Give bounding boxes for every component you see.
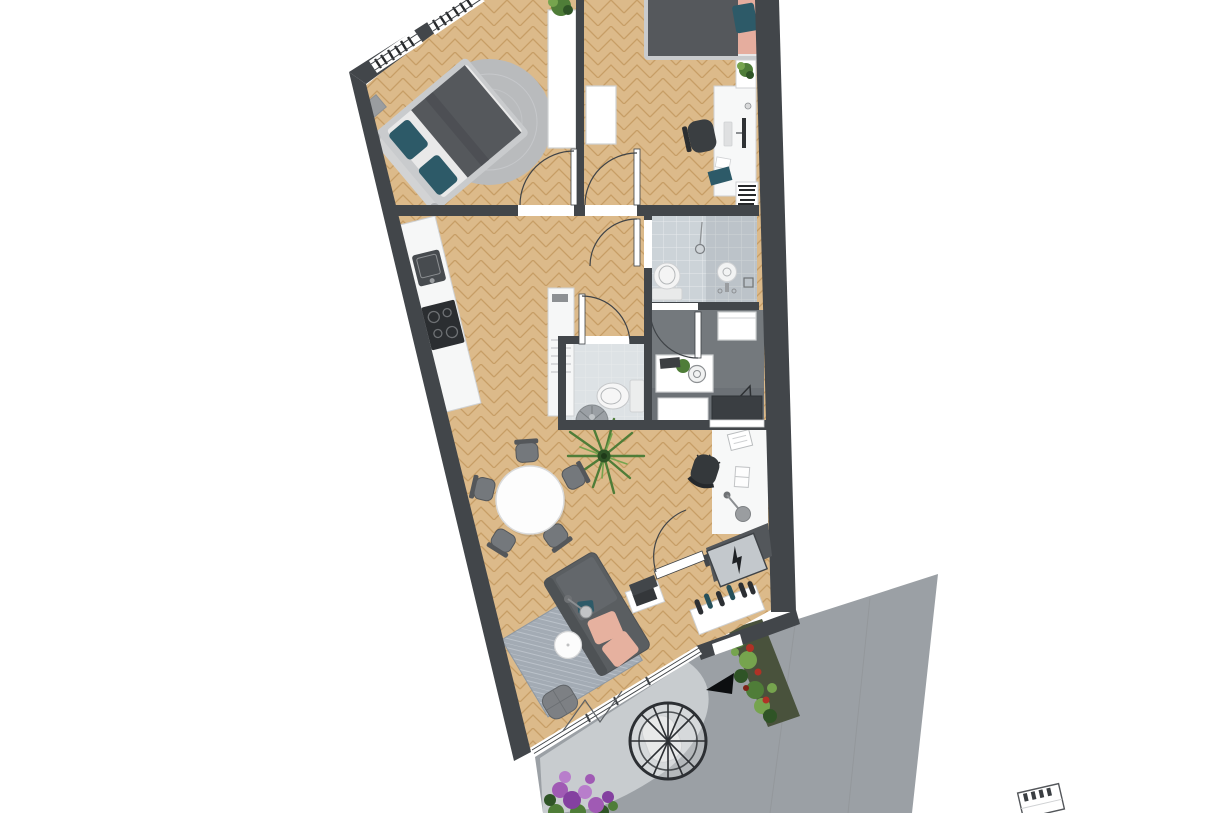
flower-foliage	[544, 794, 556, 806]
planter-flower-red	[763, 697, 770, 704]
wall-wc-left	[558, 336, 566, 428]
wall-corridor-utility	[644, 310, 652, 420]
passthrough-sill	[710, 420, 764, 427]
dining-table	[496, 466, 564, 534]
bed-blanket	[648, 0, 738, 56]
flower-purple	[585, 774, 595, 784]
utility-sink	[689, 366, 706, 383]
monitor	[742, 118, 746, 148]
toilet	[652, 263, 682, 300]
floorplan-page	[0, 0, 1220, 813]
wardrobe	[548, 10, 576, 148]
neighbor-stairs-fragment	[1018, 784, 1065, 813]
utility-counter	[656, 355, 713, 392]
planter-foliage	[731, 648, 739, 656]
flower-purple	[578, 785, 592, 799]
island-appliance	[552, 294, 568, 302]
washing-machine	[718, 312, 756, 340]
coffee-table-center	[567, 644, 570, 647]
hanging-egg-chair	[630, 703, 706, 779]
flower-purple	[559, 771, 571, 783]
floorplan-svg	[0, 0, 1220, 813]
planter-foliage	[739, 651, 757, 669]
planter-flower-red	[743, 685, 749, 691]
doorway-bathroom	[644, 220, 652, 268]
wardrobe-2	[586, 86, 616, 144]
laptop	[734, 467, 749, 488]
planter-foliage	[767, 683, 777, 693]
dining-chair	[514, 438, 540, 463]
doorway-utility	[652, 303, 698, 310]
book-shelf	[736, 182, 758, 206]
planter-flower-red	[746, 644, 754, 652]
keyboard	[724, 122, 732, 146]
wall-cabinet	[712, 396, 762, 422]
wc-toilet	[597, 380, 644, 412]
doorway-bedroom-1	[518, 205, 574, 216]
doorway-wc	[582, 336, 630, 344]
planter-foliage	[763, 709, 777, 723]
planter-foliage	[734, 669, 748, 683]
utility-tray	[660, 357, 681, 369]
egg-chair-frame	[630, 703, 706, 779]
flower-purple	[602, 791, 614, 803]
flower-purple	[588, 797, 604, 813]
planter-foliage	[746, 681, 764, 699]
doorway-bedroom-2	[585, 205, 637, 216]
planter-flower-red	[755, 669, 762, 676]
desk-cup	[745, 103, 751, 109]
bathroom-floor-shadow	[706, 216, 757, 302]
bed-2	[644, 0, 764, 60]
